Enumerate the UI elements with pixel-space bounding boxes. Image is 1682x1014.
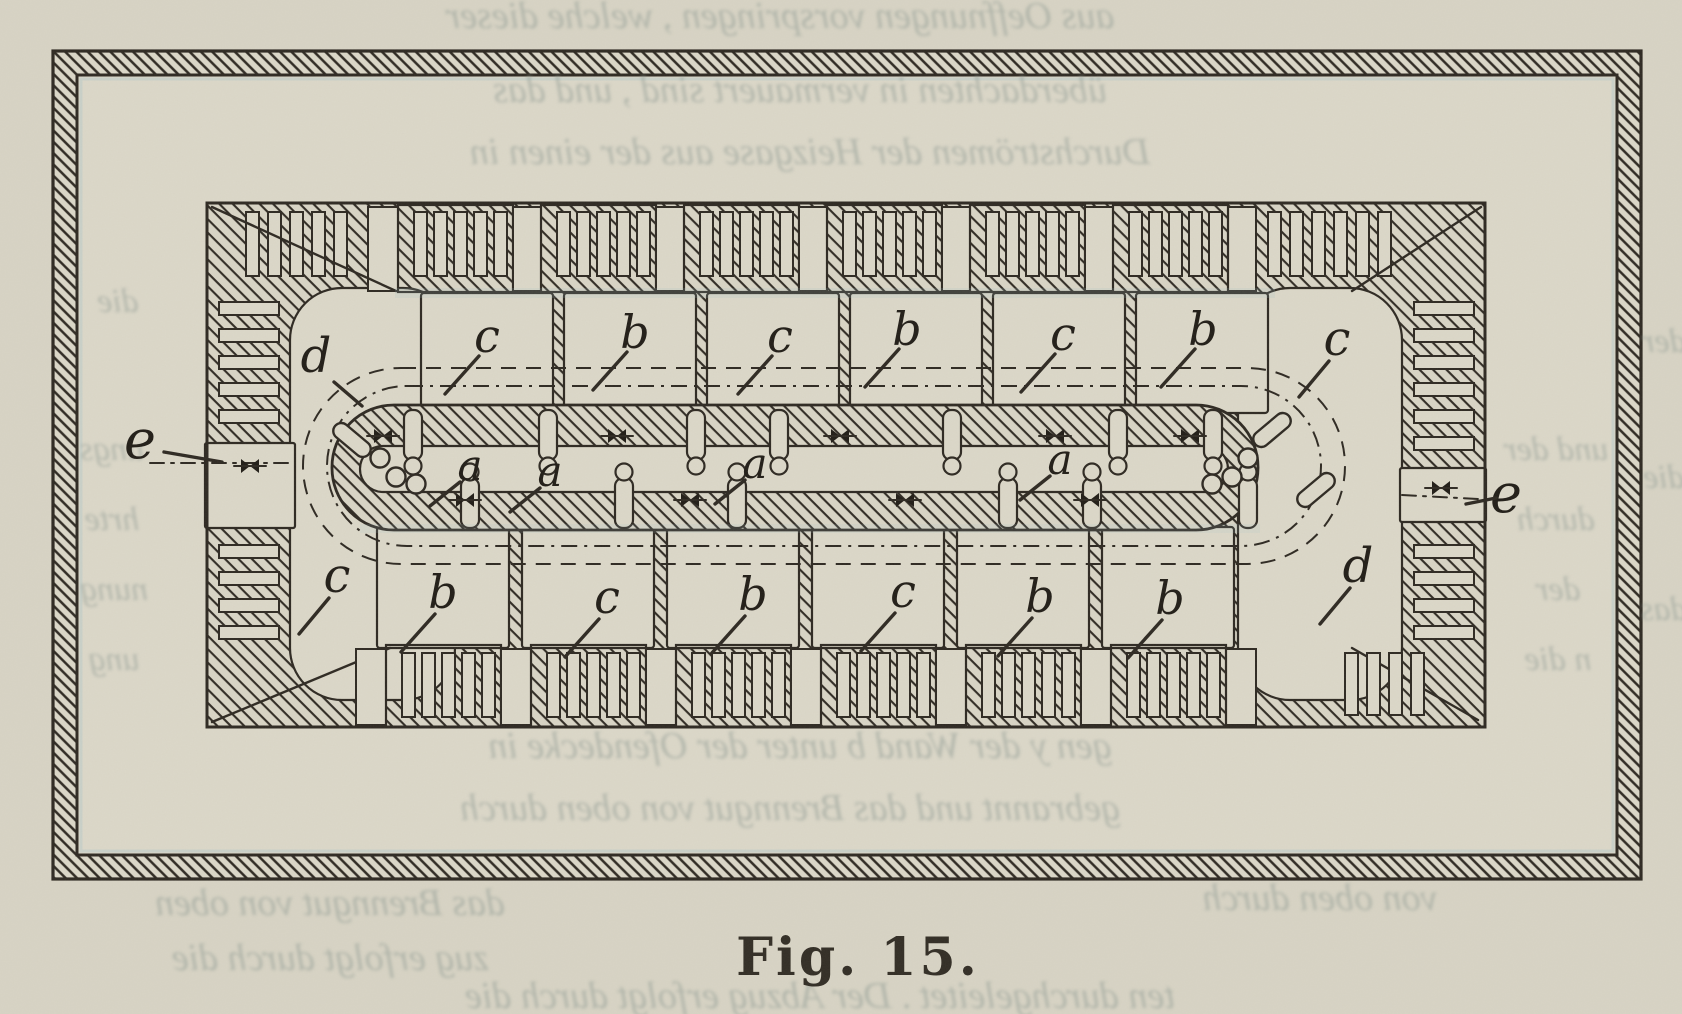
paper-grain-overlay bbox=[0, 0, 1682, 1014]
scanned-page: aus Oeffnungen vorspringen , welche dies… bbox=[0, 0, 1682, 1014]
figure-15-diagram: aus Oeffnungen vorspringen , welche dies… bbox=[0, 0, 1682, 1014]
